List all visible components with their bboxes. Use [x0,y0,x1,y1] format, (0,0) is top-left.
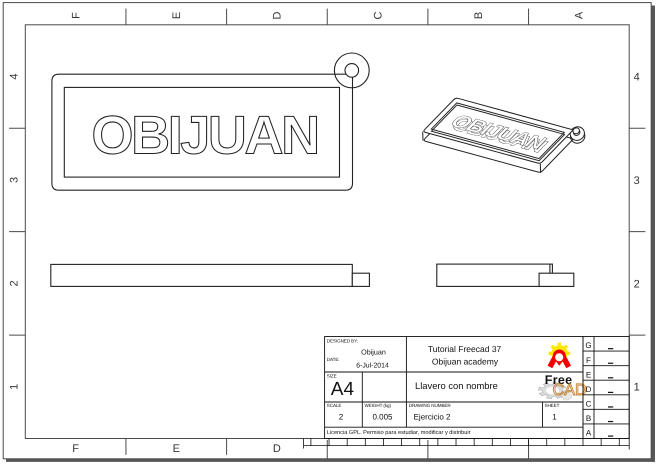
svg-text:4: 4 [9,73,21,79]
svg-text:SHEET: SHEET [545,403,560,408]
svg-text:1: 1 [9,384,21,390]
svg-text:2: 2 [339,413,344,422]
svg-text:CAD: CAD [553,381,587,399]
svg-text:Obijuan academy: Obijuan academy [432,357,499,367]
svg-text:E: E [586,370,591,379]
svg-text:Obijuan: Obijuan [361,348,386,357]
svg-text:D: D [272,11,284,19]
svg-text:6-Jul-2014: 6-Jul-2014 [356,362,389,369]
svg-text:G: G [585,341,591,350]
svg-text:2: 2 [9,280,21,286]
svg-text:OBIJUAN: OBIJUAN [92,105,318,165]
svg-text:WEIGHT (kg): WEIGHT (kg) [365,403,392,408]
svg-text:B: B [586,414,591,423]
svg-text:A: A [586,429,592,438]
svg-text:3: 3 [634,175,640,187]
svg-text:1: 1 [634,382,640,394]
svg-text:Tutorial Freecad 37: Tutorial Freecad 37 [428,344,502,354]
svg-text:B: B [473,12,485,19]
svg-text:D: D [586,385,592,394]
svg-text:1: 1 [552,413,557,422]
svg-text:E: E [171,12,183,19]
svg-text:F: F [72,443,79,455]
svg-text:A4: A4 [331,379,355,400]
svg-text:DATE:: DATE: [327,357,340,362]
svg-text:C: C [372,11,384,19]
svg-text:Ejercicio 2: Ejercicio 2 [414,413,451,422]
svg-text:SIZE: SIZE [327,374,337,379]
svg-text:Llavero con nombre: Llavero con nombre [415,380,498,391]
svg-text:DRAWING NUMBER: DRAWING NUMBER [409,403,452,408]
svg-text:0.005: 0.005 [372,413,393,422]
svg-text:D: D [273,443,281,455]
svg-text:DESIGNED BY:: DESIGNED BY: [327,339,358,344]
svg-text:E: E [173,443,180,455]
svg-text:A: A [574,11,586,19]
svg-text:4: 4 [634,71,640,83]
svg-text:F: F [70,12,82,19]
svg-text:2: 2 [634,278,640,290]
svg-text:SCALE: SCALE [327,403,342,408]
svg-text:F: F [586,356,591,365]
svg-text:3: 3 [9,177,21,183]
svg-text:C: C [586,399,592,408]
svg-text:Licencia GPL. Permiso para est: Licencia GPL. Permiso para estudiar, mod… [327,429,471,436]
